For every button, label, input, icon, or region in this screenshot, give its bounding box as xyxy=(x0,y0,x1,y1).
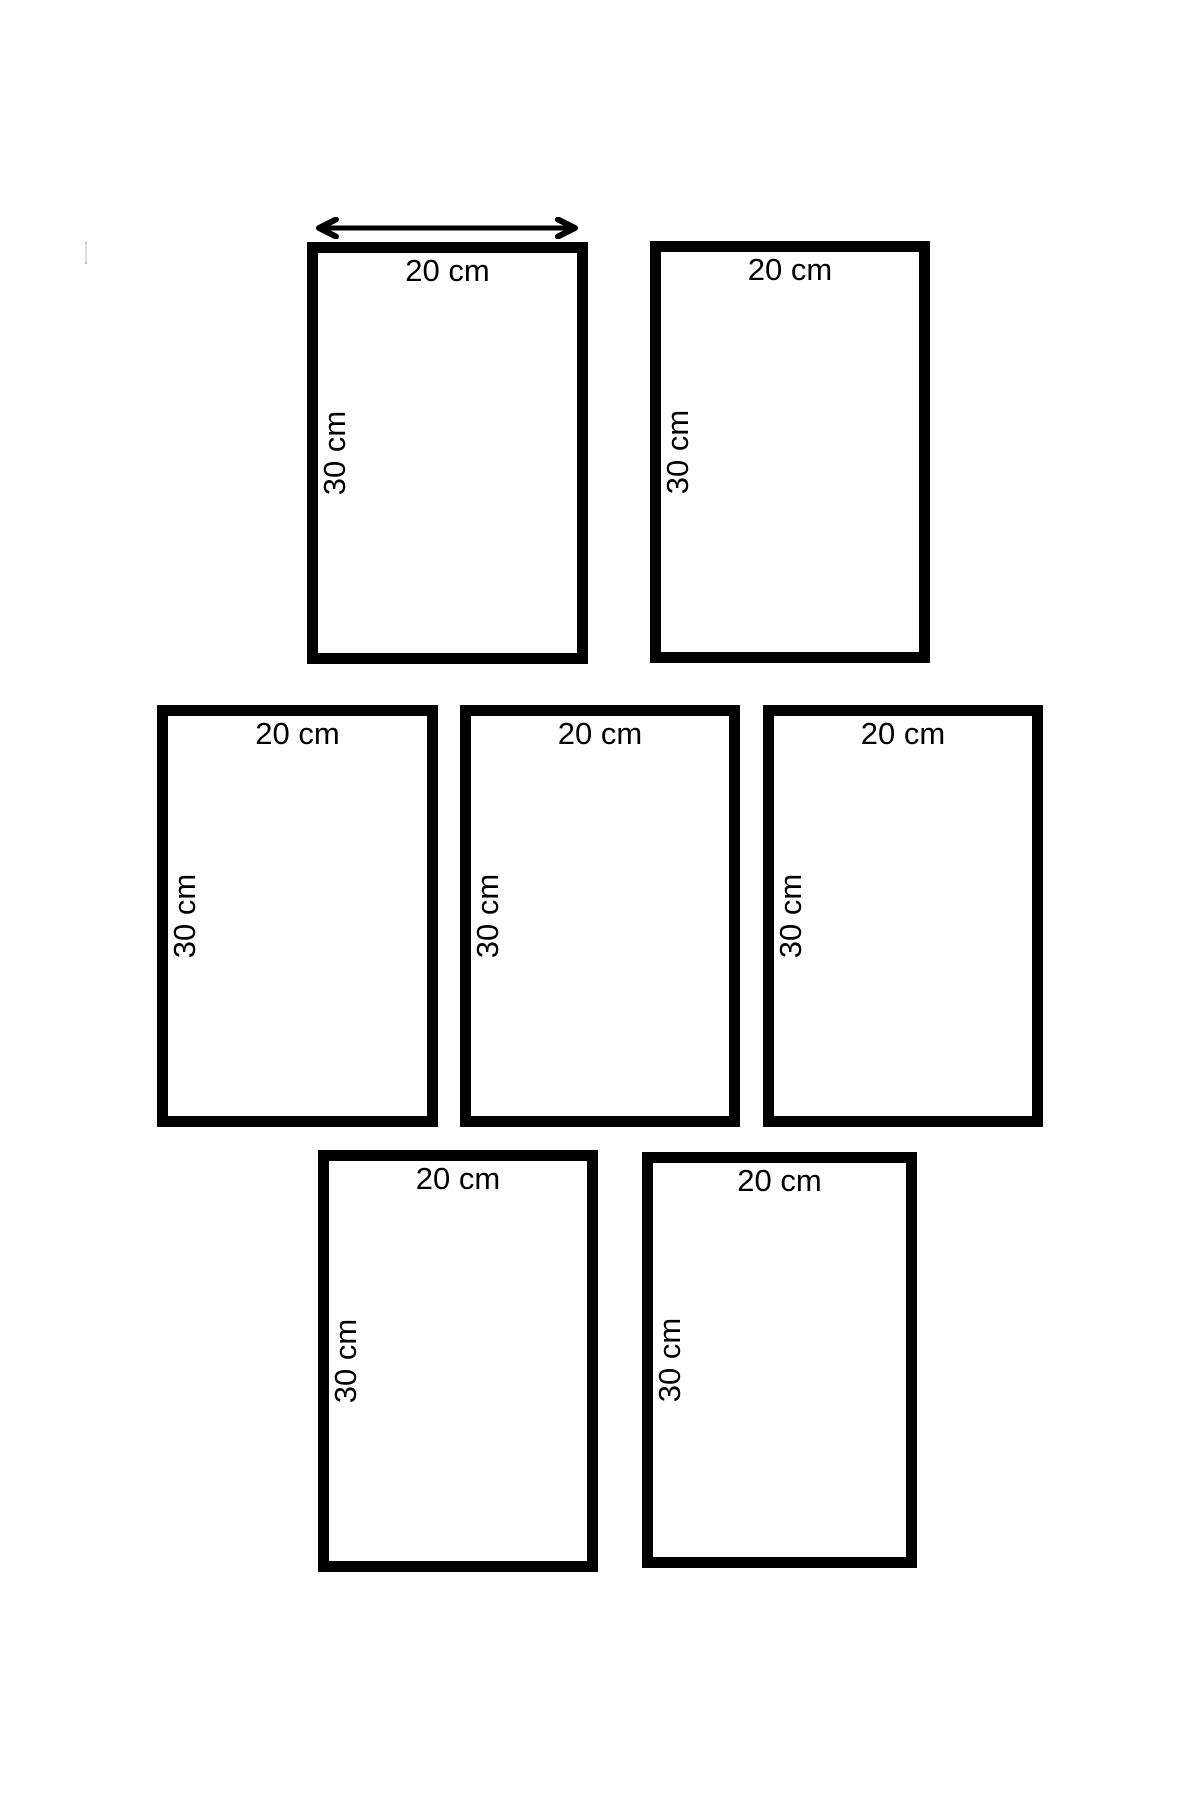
rectangle-top-left: 20 cm 30 cm xyxy=(307,242,588,664)
width-label: 20 cm xyxy=(168,716,427,752)
up-down-arrow-icon xyxy=(275,242,297,664)
height-label: 30 cm xyxy=(169,856,201,976)
rectangle-middle-center: 20 cm 30 cm xyxy=(460,705,740,1127)
height-label: 30 cm xyxy=(654,1300,686,1420)
height-label: 30 cm xyxy=(330,1301,362,1421)
width-label: 20 cm xyxy=(774,716,1032,752)
height-label: 30 cm xyxy=(472,856,504,976)
width-label: 20 cm xyxy=(318,253,577,289)
rectangle-middle-right: 20 cm 30 cm xyxy=(763,705,1043,1127)
height-label: 30 cm xyxy=(319,393,351,513)
rectangle-bottom-right: 20 cm 30 cm xyxy=(642,1152,917,1568)
rectangle-top-right: 20 cm 30 cm xyxy=(650,241,930,663)
height-label: 30 cm xyxy=(775,856,807,976)
width-label: 20 cm xyxy=(329,1161,587,1197)
diagram-canvas: 20 cm 30 cm 20 cm 30 cm 20 cm 30 cm 20 c… xyxy=(0,0,1200,1800)
width-label: 20 cm xyxy=(653,1163,906,1199)
rectangle-middle-left: 20 cm 30 cm xyxy=(157,705,438,1127)
rectangle-bottom-left: 20 cm 30 cm xyxy=(318,1150,598,1572)
height-label: 30 cm xyxy=(662,392,694,512)
left-right-arrow-icon xyxy=(314,217,580,239)
width-label: 20 cm xyxy=(661,252,919,288)
width-label: 20 cm xyxy=(471,716,729,752)
